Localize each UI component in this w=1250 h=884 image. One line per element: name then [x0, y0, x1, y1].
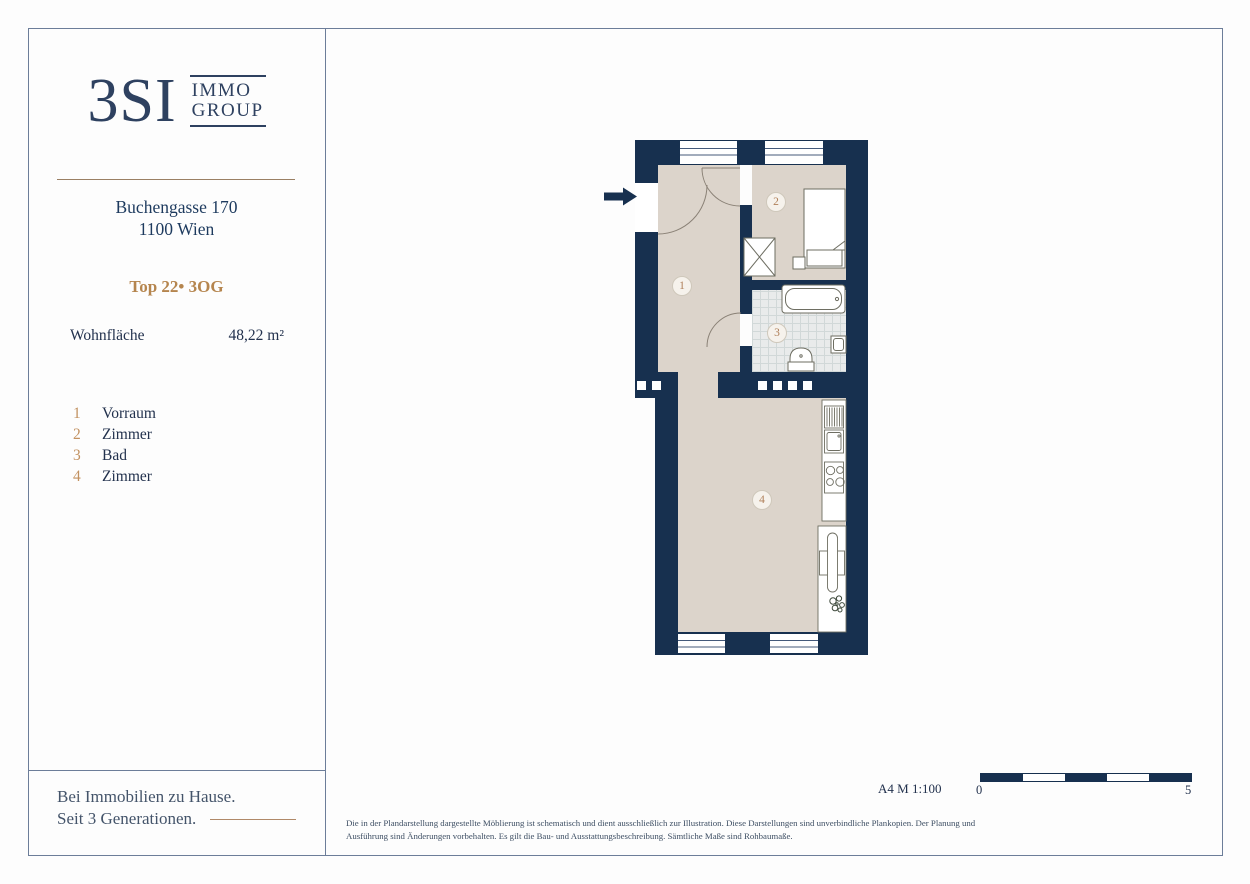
scale-segment	[1065, 774, 1107, 781]
tagline-line1: Bei Immobilien zu Hause.	[57, 786, 296, 808]
tagline-underline	[210, 819, 296, 820]
legend-item: 2Zimmer	[73, 424, 156, 445]
window-glazing-lines	[678, 149, 823, 648]
legend-item: 3Bad	[73, 445, 156, 466]
entrance-arrow-icon	[604, 188, 637, 206]
address-line1: Buchengasse 170	[28, 196, 325, 218]
unit-label: Top 22• 3OG	[28, 277, 325, 297]
wardrobe-shaft-icon	[744, 238, 775, 276]
legend-number: 4	[73, 466, 89, 487]
scale-segment	[981, 774, 1023, 781]
bed-icon	[793, 189, 845, 269]
brand-logo: 3SI IMMO GROUP	[28, 70, 325, 132]
brand-tagline: Bei Immobilien zu Hause. Seit 3 Generati…	[57, 786, 296, 830]
legend-number: 2	[73, 424, 89, 445]
room-badge-1: 1	[672, 276, 692, 296]
info-panel: 3SI IMMO GROUP Buchengasse 170 1100 Wien…	[28, 28, 325, 855]
logo-word-immo: IMMO	[192, 81, 264, 101]
room-badge-3: 3	[767, 323, 787, 343]
scale-end-label: 5	[1185, 783, 1191, 798]
dining-table-icon	[818, 526, 846, 632]
area-label: Wohnfläche	[70, 327, 145, 345]
legend-number: 1	[73, 403, 89, 424]
floor-plan-sheet: 3SI IMMO GROUP Buchengasse 170 1100 Wien…	[0, 0, 1250, 884]
scale-segment	[1149, 774, 1191, 781]
plan-disclaimer: Die in der Plandarstellung dargestellte …	[346, 817, 986, 843]
logo-immo-group: IMMO GROUP	[190, 75, 266, 127]
scale-segment	[1107, 774, 1149, 781]
bathtub-icon	[782, 285, 845, 313]
living-area-row: Wohnfläche 48,22 m²	[70, 327, 284, 345]
tagline-line2: Seit 3 Generationen.	[57, 808, 296, 830]
scale-segment	[1023, 774, 1065, 781]
room-badge-2: 2	[766, 192, 786, 212]
plan-detail-overlay	[600, 130, 880, 670]
legend-item: 1Vorraum	[73, 403, 156, 424]
format-scale-label: A4 M 1:100	[878, 781, 942, 797]
legend-item: 4Zimmer	[73, 466, 156, 487]
legend-label: Vorraum	[102, 403, 156, 424]
door-arcs	[658, 168, 741, 347]
area-value: 48,22 m²	[229, 327, 284, 345]
kitchen-counter-icon	[822, 400, 846, 521]
address-line2: 1100 Wien	[28, 218, 325, 240]
scale-bar	[980, 773, 1192, 782]
toilet-icon	[788, 348, 814, 371]
room-legend: 1Vorraum 2Zimmer 3Bad 4Zimmer	[73, 403, 156, 487]
room-badge-4: 4	[752, 490, 772, 510]
bath-sink-icon	[831, 336, 846, 353]
gold-divider	[57, 179, 295, 180]
logo-3si-text: 3SI	[87, 70, 176, 132]
logo-word-group: GROUP	[192, 101, 264, 121]
panel-divider	[325, 28, 326, 855]
legend-label: Zimmer	[102, 466, 152, 487]
legend-label: Bad	[102, 445, 127, 466]
scale-start-label: 0	[976, 783, 982, 798]
property-address: Buchengasse 170 1100 Wien	[28, 196, 325, 240]
legend-number: 3	[73, 445, 89, 466]
legend-label: Zimmer	[102, 424, 152, 445]
